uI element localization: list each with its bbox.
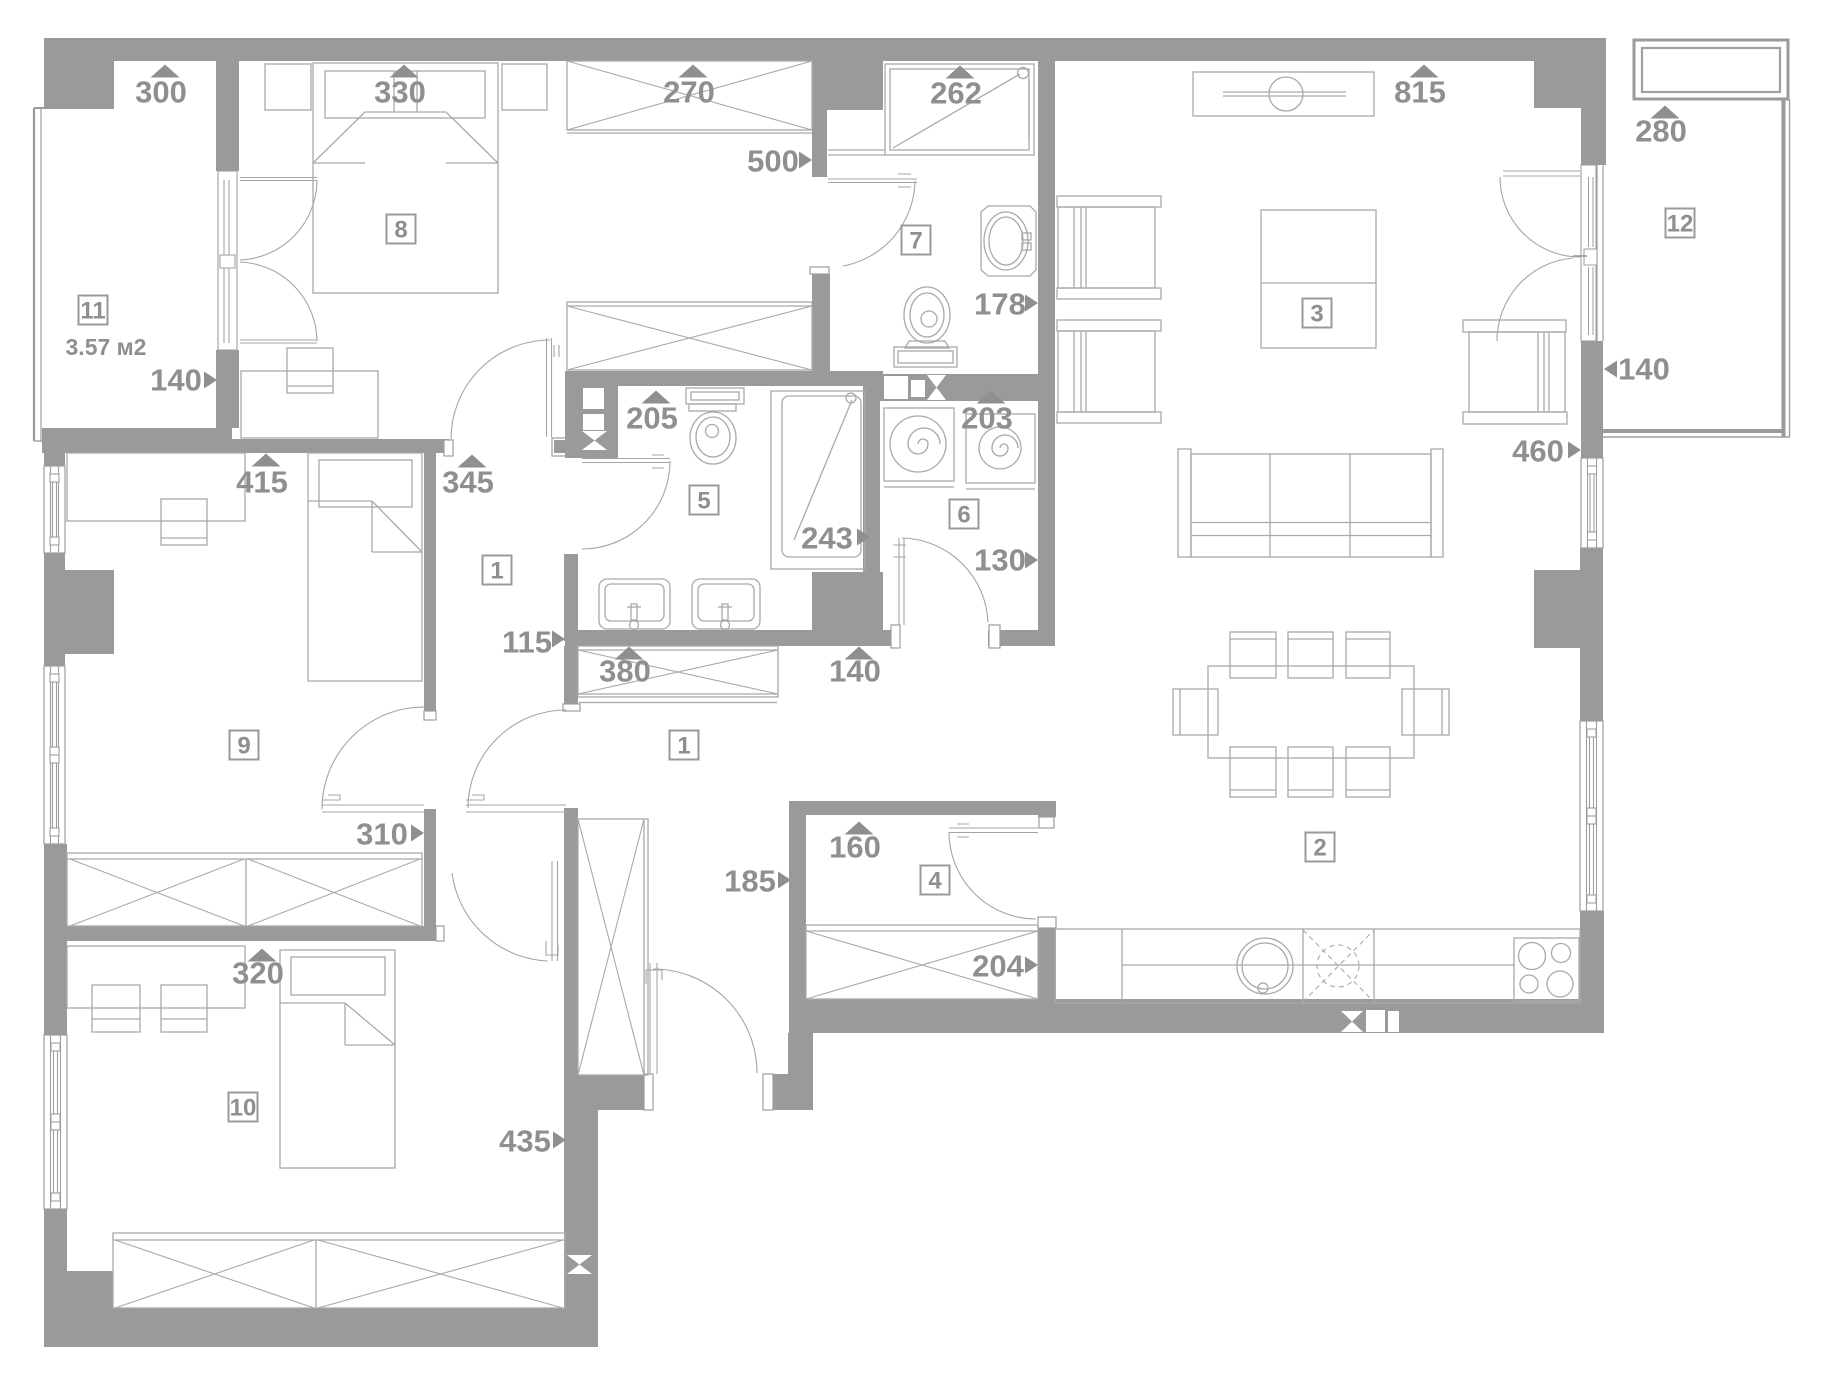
svg-text:4: 4 xyxy=(928,868,942,895)
svg-text:460: 460 xyxy=(1512,434,1564,469)
svg-text:9: 9 xyxy=(237,733,250,760)
svg-text:140: 140 xyxy=(1618,352,1670,387)
svg-text:203: 203 xyxy=(961,401,1013,436)
svg-text:1: 1 xyxy=(490,558,503,585)
svg-text:10: 10 xyxy=(230,1095,257,1122)
svg-text:280: 280 xyxy=(1635,114,1687,149)
svg-text:185: 185 xyxy=(724,864,776,899)
svg-text:300: 300 xyxy=(135,75,187,110)
svg-text:204: 204 xyxy=(972,949,1024,984)
svg-text:262: 262 xyxy=(930,76,982,111)
svg-text:140: 140 xyxy=(150,363,202,398)
svg-text:435: 435 xyxy=(499,1124,551,1159)
svg-text:7: 7 xyxy=(909,228,922,255)
svg-text:11: 11 xyxy=(80,298,105,325)
svg-text:130: 130 xyxy=(974,543,1026,578)
svg-text:3.57 м2: 3.57 м2 xyxy=(66,334,147,360)
svg-text:12: 12 xyxy=(1667,211,1694,238)
svg-text:1: 1 xyxy=(677,733,690,760)
svg-text:310: 310 xyxy=(356,817,408,852)
svg-text:6: 6 xyxy=(957,502,970,529)
svg-text:115: 115 xyxy=(502,625,552,660)
svg-text:345: 345 xyxy=(442,465,494,500)
svg-text:815: 815 xyxy=(1394,75,1446,110)
svg-text:3: 3 xyxy=(1310,301,1323,328)
svg-text:330: 330 xyxy=(374,75,426,110)
svg-text:243: 243 xyxy=(801,521,853,556)
svg-text:2: 2 xyxy=(1313,835,1326,862)
svg-text:205: 205 xyxy=(626,401,678,436)
svg-text:415: 415 xyxy=(236,465,288,500)
svg-text:5: 5 xyxy=(697,488,710,515)
svg-text:380: 380 xyxy=(599,654,651,689)
svg-text:320: 320 xyxy=(232,956,284,991)
svg-text:160: 160 xyxy=(829,830,881,865)
svg-text:270: 270 xyxy=(663,75,715,110)
svg-text:178: 178 xyxy=(974,287,1026,322)
svg-text:8: 8 xyxy=(394,217,407,244)
svg-text:500: 500 xyxy=(747,144,799,179)
svg-text:140: 140 xyxy=(829,654,881,689)
